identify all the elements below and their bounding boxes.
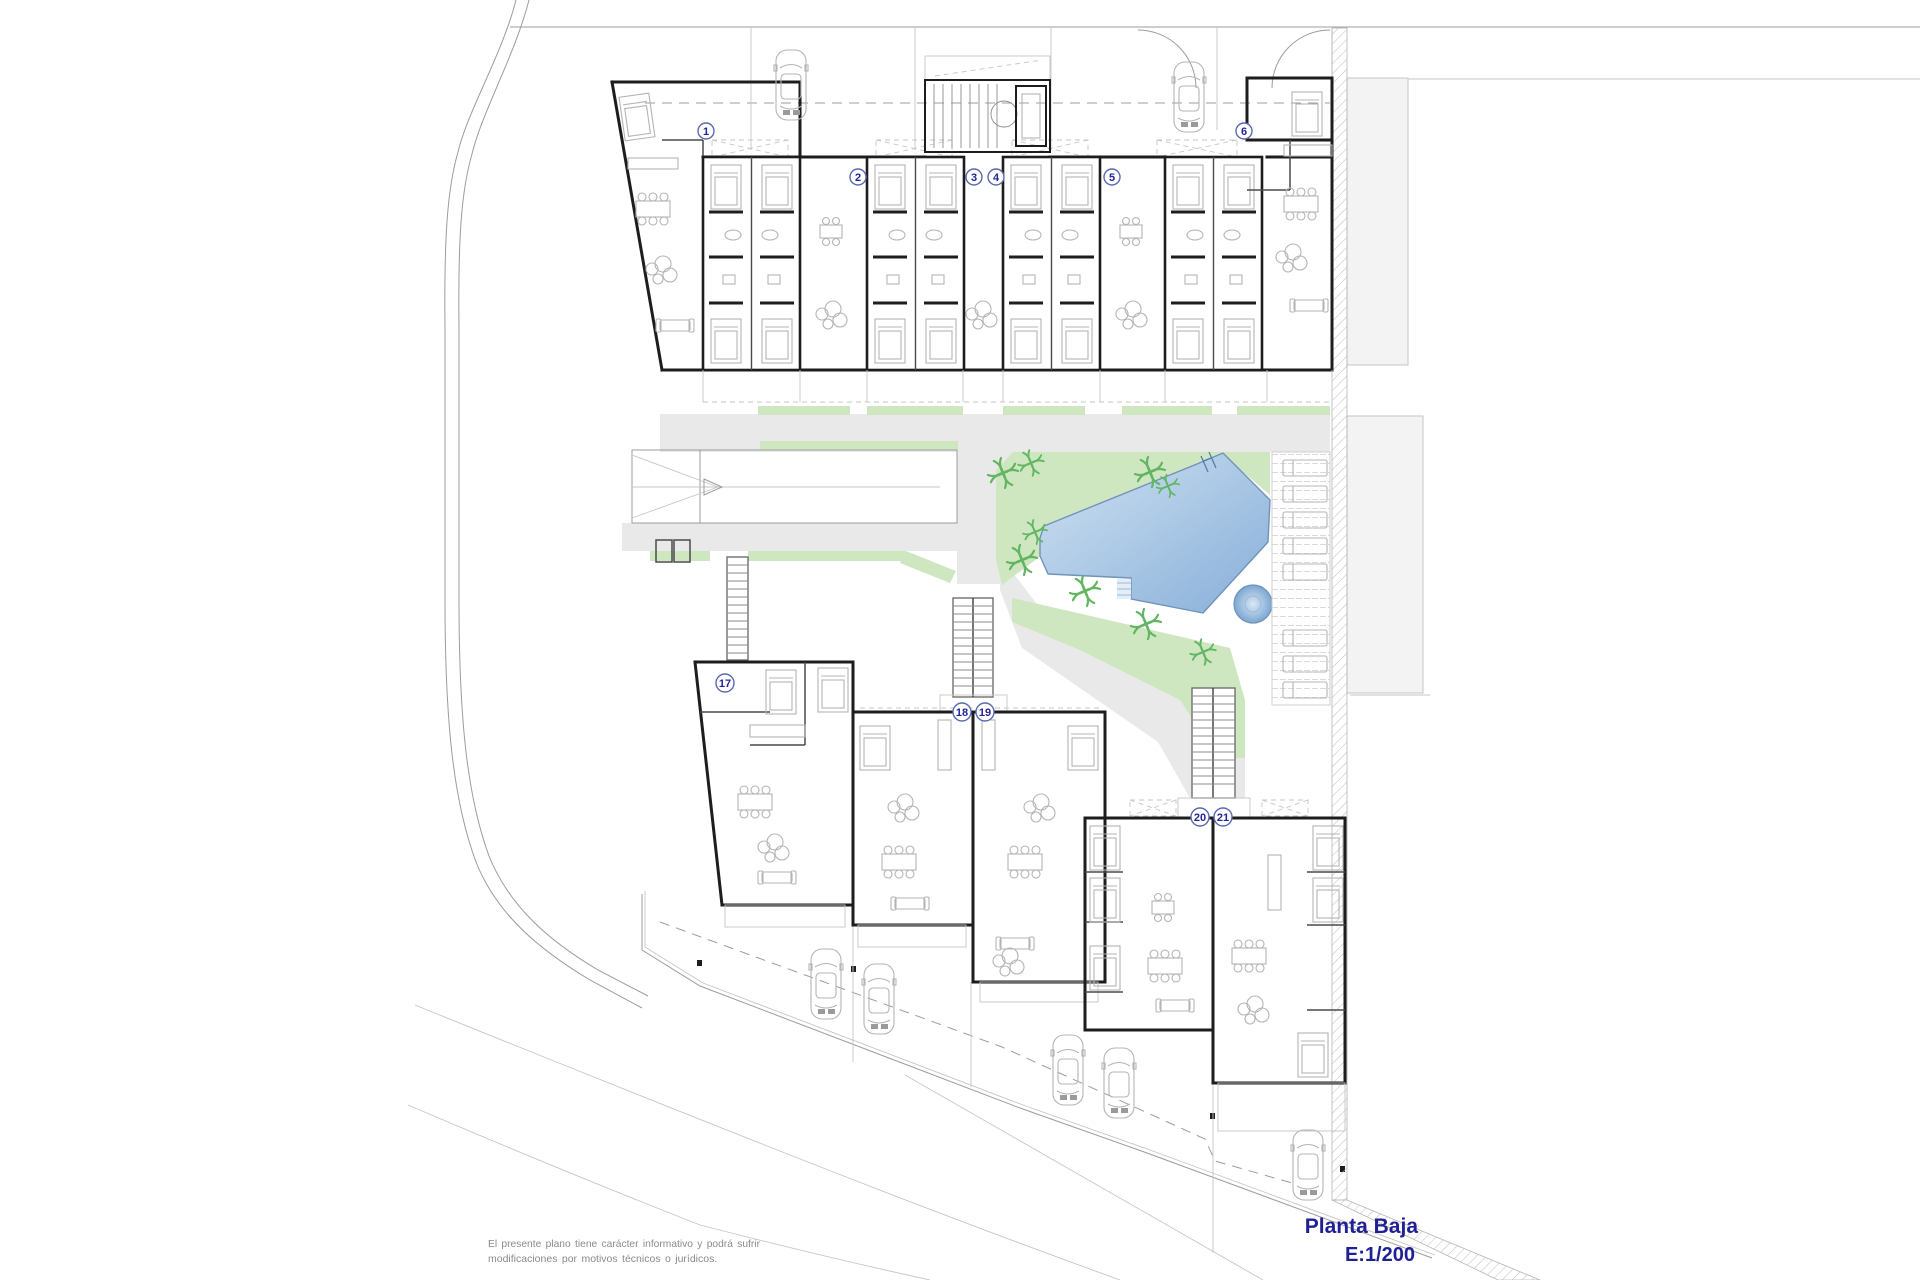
car — [774, 50, 808, 120]
unit5-living — [1116, 218, 1147, 330]
unit-badge-3: 3 — [966, 169, 982, 185]
entry-patios — [712, 140, 1237, 157]
svg-text:21: 21 — [1217, 812, 1229, 824]
unit-badge-6: 6 — [1236, 123, 1252, 139]
svg-text:19: 19 — [979, 707, 991, 719]
jacuzzi — [1234, 585, 1272, 623]
neighbor-buildings — [1347, 78, 1423, 693]
svg-text:18: 18 — [956, 707, 968, 719]
svg-text:3: 3 — [971, 172, 977, 184]
unit-badge-21: 21 — [1214, 808, 1232, 826]
north-terraces — [703, 370, 1332, 402]
svg-text:6: 6 — [1241, 126, 1247, 138]
unit-badge-18: 18 — [953, 703, 971, 721]
apartment-block-southwest — [695, 662, 1105, 1002]
unit17-interior — [700, 662, 848, 884]
annotations: El presente plano tiene carácter informa… — [488, 1215, 1418, 1266]
palm-tree — [1070, 576, 1100, 606]
sun-deck — [1272, 452, 1330, 705]
unit1-living — [619, 93, 694, 332]
disclaimer-line1: El presente plano tiene carácter informa… — [488, 1238, 760, 1250]
stair-core-north — [925, 56, 1050, 152]
svg-text:20: 20 — [1194, 812, 1206, 824]
unit-badge-5: 5 — [1104, 169, 1120, 185]
gate-post — [1210, 1113, 1215, 1119]
apartment-block-southeast — [1085, 800, 1345, 1131]
svg-text:17: 17 — [719, 678, 731, 690]
floor-plan-canvas: 1 2 3 4 5 6 17 18 19 20 21 El presente p… — [0, 0, 1920, 1280]
unit3-4-living — [966, 301, 997, 329]
gate-post — [851, 966, 856, 972]
unit2-living — [816, 218, 847, 330]
pool-steps — [1117, 579, 1131, 599]
plan-scale: E:1/200 — [1345, 1244, 1415, 1266]
svg-text:4: 4 — [993, 172, 1000, 184]
unit-badge-4: 4 — [988, 169, 1004, 185]
apartment-block-north — [612, 56, 1332, 402]
elevator — [1016, 86, 1046, 146]
car — [809, 949, 843, 1019]
unit-pair-bedrooms — [1003, 157, 1100, 370]
unit-badge-17: 17 — [716, 674, 734, 692]
stair-curve — [991, 101, 1017, 127]
car — [1291, 1130, 1325, 1200]
car — [862, 964, 896, 1034]
unit-badge-2: 2 — [850, 169, 866, 185]
svg-text:5: 5 — [1109, 172, 1115, 184]
car — [1051, 1035, 1085, 1105]
southwest-terraces — [725, 905, 1098, 1002]
unit21-interior — [1232, 826, 1345, 1077]
unit-pair-bedrooms — [1165, 157, 1262, 370]
unit-badge-19: 19 — [976, 703, 994, 721]
stairwell-center — [940, 598, 1007, 712]
stairwell-west — [727, 557, 748, 660]
gate-post — [697, 960, 702, 966]
svg-text:2: 2 — [855, 172, 861, 184]
disclaimer-line2: modificaciones por motivos técnicos o ju… — [488, 1253, 717, 1265]
car — [1102, 1048, 1136, 1118]
unit-badge-20: 20 — [1191, 808, 1209, 826]
unit18-interior — [860, 720, 951, 910]
unit19-interior — [982, 720, 1098, 976]
southeast-terrace — [1218, 1083, 1345, 1131]
plan-title: Planta Baja — [1305, 1215, 1419, 1238]
car — [1172, 62, 1206, 132]
unit-badge-1: 1 — [698, 123, 714, 139]
unit20-interior — [1085, 826, 1194, 1012]
unit-pair-bedrooms — [703, 157, 800, 370]
unit-pair-bedrooms — [867, 157, 964, 370]
svg-text:1: 1 — [703, 126, 709, 138]
